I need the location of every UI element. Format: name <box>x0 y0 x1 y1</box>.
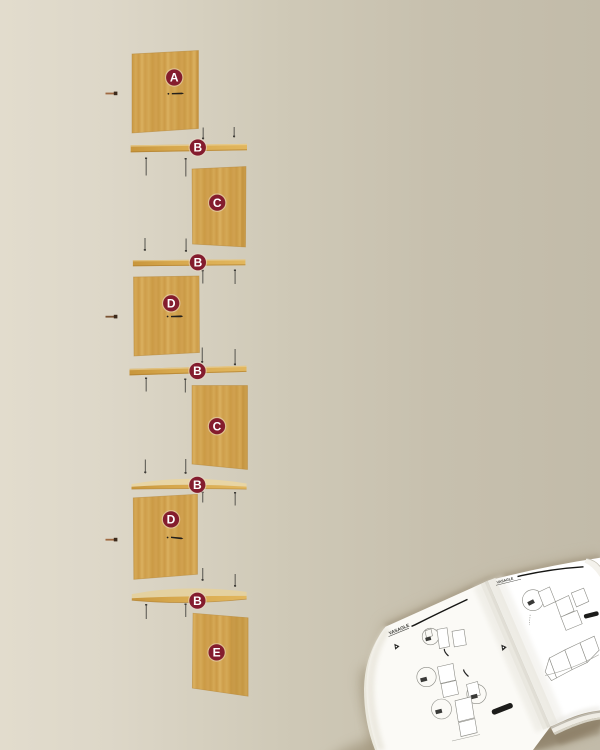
svg-text:A: A <box>170 71 179 85</box>
svg-text:B: B <box>193 141 202 155</box>
svg-text:C: C <box>213 419 222 433</box>
svg-text:B: B <box>193 478 202 492</box>
svg-text:B: B <box>193 594 202 608</box>
svg-text:C: C <box>213 196 222 210</box>
svg-text:E: E <box>213 646 221 660</box>
svg-text:D: D <box>167 297 176 311</box>
svg-text:D: D <box>167 513 176 527</box>
svg-text:B: B <box>193 364 202 378</box>
svg-text:B: B <box>194 256 203 270</box>
